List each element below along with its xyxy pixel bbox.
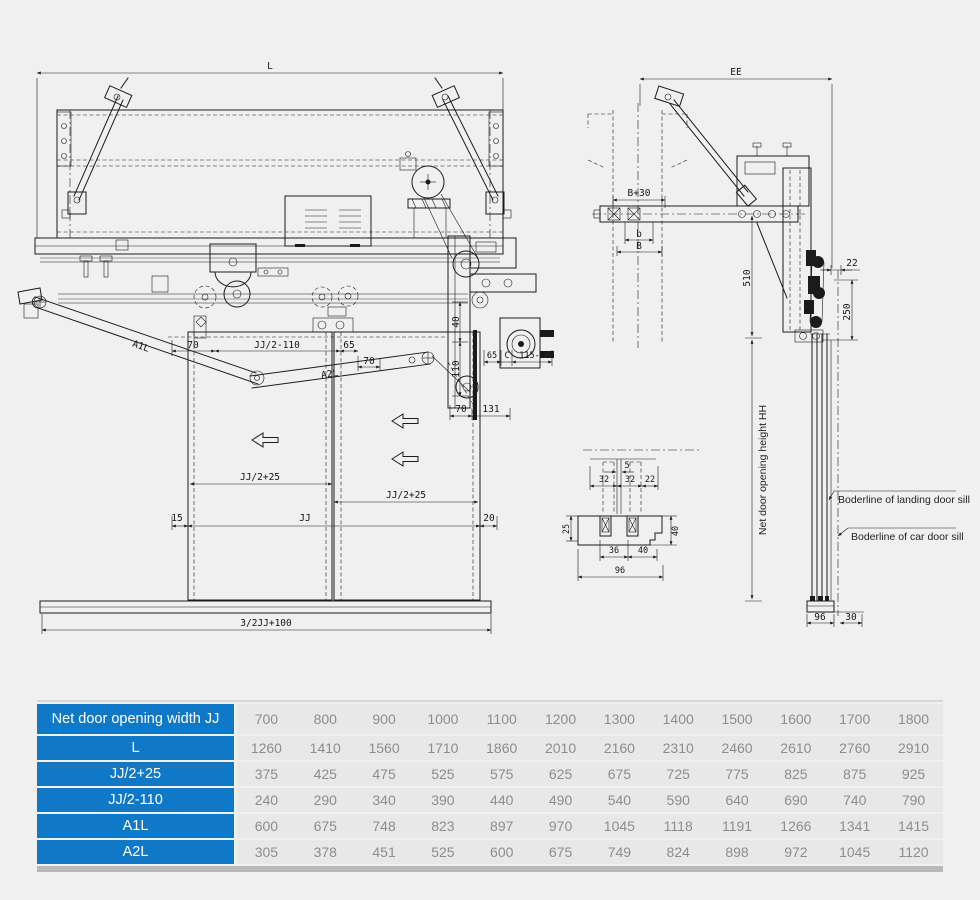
table-cell: 375 <box>237 762 296 786</box>
table-cell: 600 <box>472 840 531 864</box>
dim-label-115e: 115-E <box>519 351 545 361</box>
table-cell: 690 <box>766 788 825 812</box>
row-header-l: L <box>37 736 234 760</box>
arm-a1l-label: A1L <box>131 339 151 355</box>
table-cell: 1800 <box>884 704 943 734</box>
spec-table: Net door opening width JJ 70080090010001… <box>37 700 943 872</box>
table-cell: 1410 <box>296 736 355 760</box>
table-cell: 1120 <box>884 840 943 864</box>
row-header-jj2-plus25: JJ/2+25 <box>37 762 234 786</box>
table-cell: 775 <box>708 762 767 786</box>
table-cell: 490 <box>531 788 590 812</box>
table-cell: 425 <box>296 762 355 786</box>
row-values: 7008009001000110012001300140015001600170… <box>237 704 943 734</box>
table-cell: 740 <box>825 788 884 812</box>
dim-label-70-mid: 70 <box>363 356 375 367</box>
dim-label-250: 250 <box>842 303 853 320</box>
table-row: A1L 600675748823897970104511181191126613… <box>37 814 943 838</box>
row-values: 30537845152560067574982489897210451120 <box>237 840 943 864</box>
row-values: 6006757488238979701045111811911266134114… <box>237 814 943 838</box>
table-row: JJ/2+25 37542547552557562567572577582587… <box>37 762 943 786</box>
table-cell: 1191 <box>708 814 767 838</box>
table-cell: 1100 <box>472 704 531 734</box>
table-cell: 1260 <box>237 736 296 760</box>
side-operator-assembly <box>737 143 825 342</box>
table-cell: 1700 <box>825 704 884 734</box>
table-cell: 1710 <box>413 736 472 760</box>
table-cell: 1045 <box>825 840 884 864</box>
table-cell: 1000 <box>413 704 472 734</box>
row-values: 240290340390440490540590640690740790 <box>237 788 943 812</box>
row-header-a1l: A1L <box>37 814 234 838</box>
dim-label-32-left: 32 <box>599 475 609 485</box>
dim-label-30: 30 <box>845 612 857 623</box>
dim-label-jj: JJ <box>299 513 310 524</box>
table-cell: 748 <box>355 814 414 838</box>
arm-a2l-label: A2L <box>320 368 339 381</box>
table-cell: 825 <box>766 762 825 786</box>
dim-label-jj2-plus25-left: JJ/2+25 <box>240 472 280 483</box>
table-cell: 823 <box>413 814 472 838</box>
table-bottom-shadow <box>37 866 943 872</box>
side-sill <box>807 596 864 612</box>
side-view: EE B+30 b B 510 22 250 Net door opening … <box>588 67 970 627</box>
table-row: JJ/2-110 2402903403904404905405906406907… <box>37 788 943 812</box>
dim-label-70-left: 70 <box>187 340 199 351</box>
dim-label-b-upper: B <box>636 241 642 252</box>
landing-door-sill-note: Boderline of landing door sill <box>838 494 970 506</box>
dim-label-ee: EE <box>730 67 742 78</box>
table-cell: 900 <box>355 704 414 734</box>
table-cell: 675 <box>296 814 355 838</box>
table-cell: 800 <box>296 704 355 734</box>
table-cell: 2610 <box>766 736 825 760</box>
table-cell: 675 <box>590 762 649 786</box>
dim-label-l: L <box>267 61 273 72</box>
dim-label-jj2-minus110: JJ/2-110 <box>254 340 300 351</box>
sill-profile <box>578 516 662 545</box>
table-cell: 2910 <box>884 736 943 760</box>
drive-pulley <box>400 152 478 259</box>
car-door-sill-note: Boderline of car door sill <box>851 531 964 543</box>
table-cell: 1200 <box>531 704 590 734</box>
table-cell: 790 <box>884 788 943 812</box>
dim-label-65-right: 65 <box>487 351 497 361</box>
dim-label-32-right: 32 <box>625 475 635 485</box>
table-cell: 1300 <box>590 704 649 734</box>
right-brace <box>432 78 511 218</box>
dim-label-65-mid: 65 <box>343 340 354 351</box>
table-cell: 898 <box>708 840 767 864</box>
dim-label-c: C <box>504 351 509 361</box>
net-door-opening-height-label: Net door opening height HH <box>757 405 769 535</box>
table-cell: 378 <box>296 840 355 864</box>
dim-label-131: 131 <box>482 404 499 415</box>
dim-label-110-vert: 110 <box>451 360 462 377</box>
dim-label-40-side: 40 <box>671 526 681 536</box>
table-cell: 1560 <box>355 736 414 760</box>
table-cell: 1860 <box>472 736 531 760</box>
dim-label-96-detail: 96 <box>615 566 625 576</box>
table-cell: 290 <box>296 788 355 812</box>
table-cell: 440 <box>472 788 531 812</box>
door-direction-arrows <box>252 414 418 466</box>
table-cell: 1600 <box>766 704 825 734</box>
dim-label-25: 25 <box>562 524 572 534</box>
table-cell: 540 <box>590 788 649 812</box>
dim-label-sill-width: 3/2JJ+100 <box>240 618 292 629</box>
table-cell: 240 <box>237 788 296 812</box>
table-cell: 1415 <box>884 814 943 838</box>
table-cell: 1118 <box>649 814 708 838</box>
table-cell: 625 <box>531 762 590 786</box>
table-row: L 12601410156017101860201021602310246026… <box>37 736 943 760</box>
dim-label-40-vert: 40 <box>451 316 462 328</box>
dim-label-15: 15 <box>171 513 182 524</box>
table-cell: 897 <box>472 814 531 838</box>
row-values: 375425475525575625675725775825875925 <box>237 762 943 786</box>
table-row: A2L 305378451525600675749824898972104511… <box>37 840 943 864</box>
table-cell: 824 <box>649 840 708 864</box>
dim-label-70-bottom: 70 <box>455 404 467 415</box>
wall-column <box>588 103 687 348</box>
table-cell: 1400 <box>649 704 708 734</box>
table-cell: 451 <box>355 840 414 864</box>
dim-label-b30: B+30 <box>628 188 651 199</box>
dim-label-20: 20 <box>483 513 495 524</box>
table-cell: 2010 <box>531 736 590 760</box>
table-cell: 590 <box>649 788 708 812</box>
table-cell: 525 <box>413 762 472 786</box>
table-cell: 925 <box>884 762 943 786</box>
table-cell: 390 <box>413 788 472 812</box>
table-cell: 1500 <box>708 704 767 734</box>
table-cell: 340 <box>355 788 414 812</box>
table-cell: 675 <box>531 840 590 864</box>
table-cell: 970 <box>531 814 590 838</box>
mounting-bar <box>592 206 806 222</box>
side-brace <box>655 86 757 206</box>
table-cell: 1266 <box>766 814 825 838</box>
dim-label-96-side: 96 <box>814 612 826 623</box>
dim-label-jj2-plus25-right: JJ/2+25 <box>386 490 426 501</box>
table-cell: 475 <box>355 762 414 786</box>
table-cell: 1045 <box>590 814 649 838</box>
dim-label-5: 5 <box>624 461 629 471</box>
dim-label-40-bottom: 40 <box>638 546 648 556</box>
table-cell: 749 <box>590 840 649 864</box>
track-bar <box>35 238 503 303</box>
row-header-jj: Net door opening width JJ <box>37 704 234 734</box>
table-cell: 2760 <box>825 736 884 760</box>
row-header-jj2-minus110: JJ/2-110 <box>37 788 234 812</box>
table-cell: 725 <box>649 762 708 786</box>
front-view: L 70 JJ/2-110 65 70 A1L A2L 40 110 65 C … <box>18 61 554 634</box>
sill-detail-view: 5 32 32 22 25 40 36 40 96 <box>562 450 700 581</box>
dim-label-b-lower: b <box>636 229 642 240</box>
row-values: 1260141015601710186020102160231024602610… <box>237 736 943 760</box>
left-brace <box>62 78 132 218</box>
table-cell: 525 <box>413 840 472 864</box>
table-cell: 640 <box>708 788 767 812</box>
table-cell: 875 <box>825 762 884 786</box>
engineering-drawing: L 70 JJ/2-110 65 70 A1L A2L 40 110 65 C … <box>0 0 980 695</box>
table-cell: 700 <box>237 704 296 734</box>
dim-label-22: 22 <box>846 258 857 269</box>
table-cell: 2460 <box>708 736 767 760</box>
table-cell: 972 <box>766 840 825 864</box>
dim-label-22-detail: 22 <box>645 475 655 485</box>
table-cell: 2160 <box>590 736 649 760</box>
landing-sill <box>40 601 491 613</box>
table-cell: 305 <box>237 840 296 864</box>
controller-box <box>285 196 371 247</box>
arm-a2l <box>250 352 434 388</box>
row-header-a2l: A2L <box>37 840 234 864</box>
dim-label-510: 510 <box>742 269 753 286</box>
table-row: Net door opening width JJ 70080090010001… <box>37 704 943 734</box>
dim-label-36: 36 <box>609 546 619 556</box>
table-cell: 575 <box>472 762 531 786</box>
page: L 70 JJ/2-110 65 70 A1L A2L 40 110 65 C … <box>0 0 980 900</box>
table-cell: 2310 <box>649 736 708 760</box>
table-cell: 1341 <box>825 814 884 838</box>
table-cell: 600 <box>237 814 296 838</box>
